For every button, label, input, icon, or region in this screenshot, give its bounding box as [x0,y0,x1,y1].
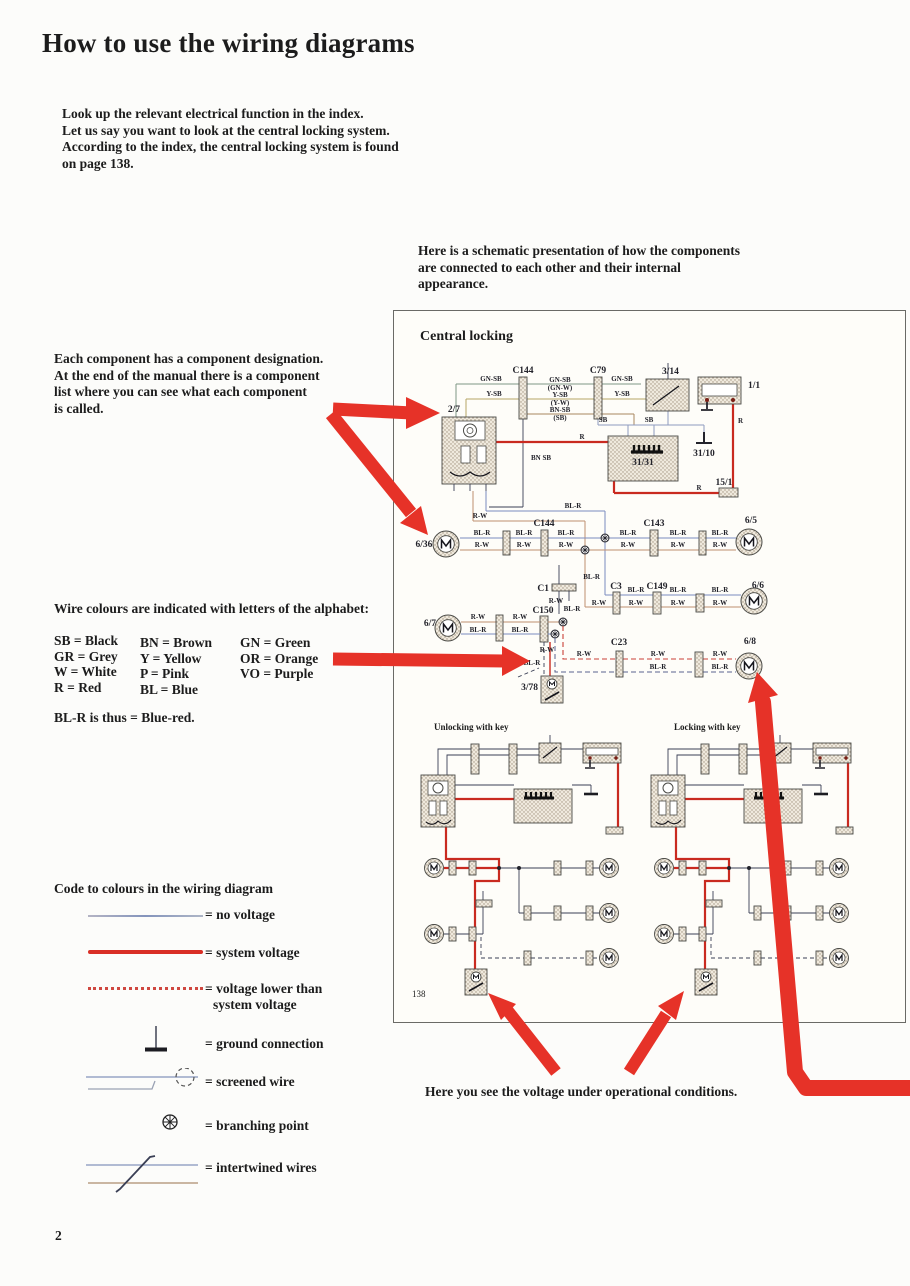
legend-label: = voltage lower than [205,981,322,997]
colour-code-item: R = Red [54,680,118,696]
wire-label: R-W [577,650,591,658]
wire-label: BL-R [628,586,646,594]
colour-code-item: Y = Yellow [140,651,212,667]
component-label: 15/1 [716,478,733,488]
component-label: C3 [610,582,622,592]
legend-heading: Code to colours in the wiring diagram [54,881,273,898]
wire-label: R-W [713,650,727,658]
component-label: C1 [537,584,549,594]
wire-label: BL-R [670,529,688,537]
wire-label: BL-R [516,529,534,537]
component-note-line: Each component has a component designati… [54,351,323,368]
diagram-panel: Central locking Unlocking with key Locki… [393,310,906,1023]
colour-code-item: GR = Grey [54,649,118,665]
component-label: C150 [532,606,553,616]
component-label: 6/7 [424,619,436,629]
colour-code-column-2: BN = Brown Y = Yellow P = Pink BL = Blue [140,635,212,697]
system-voltage-line [88,950,203,954]
wire-label: BL-R [650,663,668,671]
component-note-line: list where you can see what each compone… [54,384,323,401]
manual-page: { "page": { "title": "How to use the wir… [0,0,910,1286]
page-number: 2 [55,1228,62,1245]
legend-label: system voltage [213,997,297,1013]
component-label: 1/1 [748,381,760,391]
branching-point-symbol [160,1112,180,1132]
wire-label: R-W [629,599,643,607]
page-title: How to use the wiring diagrams [42,28,415,59]
schematic-note: Here is a schematic presentation of how … [418,243,740,293]
wire-label: BL-R [565,502,583,510]
component-label: 6/6 [752,581,764,591]
wire-label: R-W [671,599,685,607]
wire-label: BN SB [531,454,551,462]
wire-label: SB [599,416,608,424]
screened-wire-symbol [86,1068,208,1096]
wire-label: R-W [621,541,635,549]
wire-label: BL-R [620,529,638,537]
component-label: 6/5 [745,516,757,526]
colour-code-item: SB = Black [54,633,118,649]
wiring-diagram-svg: C144 C79 3/14 1/1 2/7 31/31 31/10 15/1 6… [394,311,905,1022]
low-voltage-line [88,987,203,990]
wire-label: R-W [559,541,573,549]
wire-label: BL-R [474,529,492,537]
wire-label: GN-SB [611,375,633,383]
component-label: 2/7 [448,405,460,415]
component-label: 6/36 [416,540,433,550]
component-label: C143 [643,519,664,529]
no-voltage-line [88,915,203,917]
diagram-title: Central locking [420,329,513,346]
wire-label: R-W [671,541,685,549]
wire-label: R-W [473,512,487,520]
colour-code-item: GN = Green [240,635,318,651]
intro-line: on page 138. [62,156,399,173]
intro-line: Let us say you want to look at the centr… [62,123,399,140]
legend-label: = branching point [205,1118,309,1134]
wire-label: R-W [517,541,531,549]
component-label: 3/78 [521,683,538,693]
component-label: C149 [646,582,667,592]
legend-label: = system voltage [205,945,300,961]
wire-label: R-W [475,541,489,549]
legend-label: = ground connection [205,1036,323,1052]
component-label: 3/14 [662,367,679,377]
wire-label: GN-SB [549,376,571,384]
component-label: C144 [533,519,554,529]
colour-code-column-1: SB = Black GR = Grey W = White R = Red [54,633,118,695]
colour-code-item: BL = Blue [140,682,212,698]
wire-label: BL-R [558,529,576,537]
wire-label: R-W [713,541,727,549]
wire-label: R-W [549,597,563,605]
component-label: 6/8 [744,637,756,647]
sub-diagram-title-right: Locking with key [674,722,741,732]
component-note-line: At the end of the manual there is a comp… [54,368,323,385]
intro-text: Look up the relevant electrical function… [62,106,399,172]
wire-colours-heading: Wire colours are indicated with letters … [54,601,369,618]
wire-label: R-W [651,650,665,658]
colour-code-item: OR = Orange [240,651,318,667]
diagram-page-ref: 138 [412,989,426,999]
wire-label: R [579,433,585,441]
wire-label: R-W [471,613,485,621]
colour-code-item: W = White [54,664,118,680]
component-label: C144 [512,366,533,376]
wire-label: BL-R [670,586,688,594]
wire-label: R [738,417,744,425]
legend-label: = screened wire [205,1074,295,1090]
wire-label: R [696,484,702,492]
wire-label: BL-R [712,529,730,537]
wire-label: BL-R [564,605,582,613]
component-note-line: is called. [54,401,323,418]
wire-label: R-W [713,599,727,607]
colour-code-item: VO = Purple [240,666,318,682]
wire-label: R-W [592,599,606,607]
wire-label: Y-SB [486,390,502,398]
colour-code-item: BN = Brown [140,635,212,651]
intro-line: According to the index, the central lock… [62,139,399,156]
ground-symbol [142,1026,170,1056]
intertwined-wires-symbol [86,1152,208,1196]
wire-label: R-W [540,646,554,654]
colour-code-item: P = Pink [140,666,212,682]
wire-label: BL-R [512,626,530,634]
wire-label: BL-R [712,586,730,594]
schematic-note-line: appearance. [418,276,740,293]
component-label: C23 [611,638,628,648]
wire-label: GN-SB [480,375,502,383]
voltage-note: Here you see the voltage under operation… [425,1084,737,1100]
wire-label: BN-SB [550,406,571,414]
wire-label: Y-SB [614,390,630,398]
schematic-note-line: are connected to each other and their in… [418,260,740,277]
legend-label: = intertwined wires [205,1160,317,1176]
wire-label: BL-R [470,626,488,634]
colour-example: BL-R is thus = Blue-red. [54,710,195,727]
wire-label: SB [645,416,654,424]
colour-code-column-3: GN = Green OR = Orange VO = Purple [240,635,318,682]
component-note: Each component has a component designati… [54,351,323,417]
sub-diagram-title-left: Unlocking with key [434,722,509,732]
component-label: 31/31 [632,458,654,468]
intro-line: Look up the relevant electrical function… [62,106,399,123]
component-label: 31/10 [693,449,715,459]
legend-label: = no voltage [205,907,275,923]
schematic-note-line: Here is a schematic presentation of how … [418,243,740,260]
wire-label: (SB) [553,414,567,422]
wire-label: Y-SB [552,391,568,399]
wire-label: BL-R [712,663,730,671]
wire-label: BL-R [583,573,601,581]
component-label: C79 [590,366,607,376]
wire-label: BL-R [524,659,542,667]
wire-label: R-W [513,613,527,621]
